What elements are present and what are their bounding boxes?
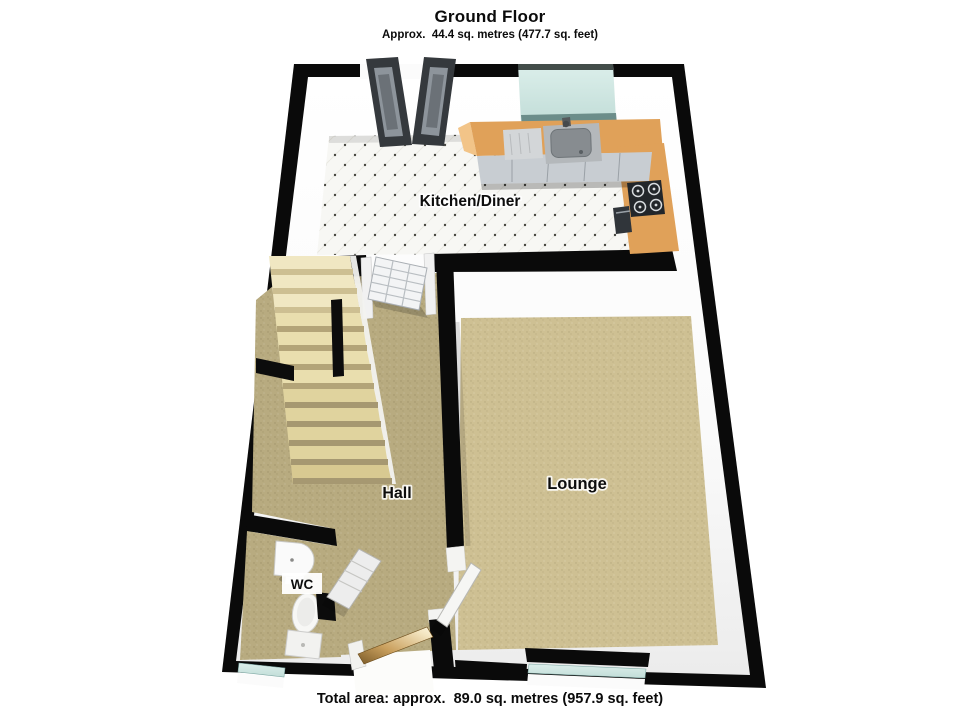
kitchen-label: Kitchen/Diner <box>420 193 521 210</box>
stair-upper-flight <box>269 256 360 313</box>
total-area-footer: Total area: approx. 89.0 sq. metres (957… <box>0 691 980 707</box>
kitchen-hob <box>627 180 665 217</box>
floorplan-canvas: Ground Floor Approx. 44.4 sq. metres (47… <box>0 0 980 711</box>
oven <box>613 206 632 234</box>
lounge-label: Lounge <box>547 475 607 493</box>
hall-label: Hall <box>382 485 411 502</box>
wc-label: WC <box>291 577 314 592</box>
kitchen-window <box>518 64 617 126</box>
stair-lower-flight <box>283 389 392 484</box>
floor-plan-drawing: Kitchen/Diner Hall Lounge WC <box>0 0 980 711</box>
